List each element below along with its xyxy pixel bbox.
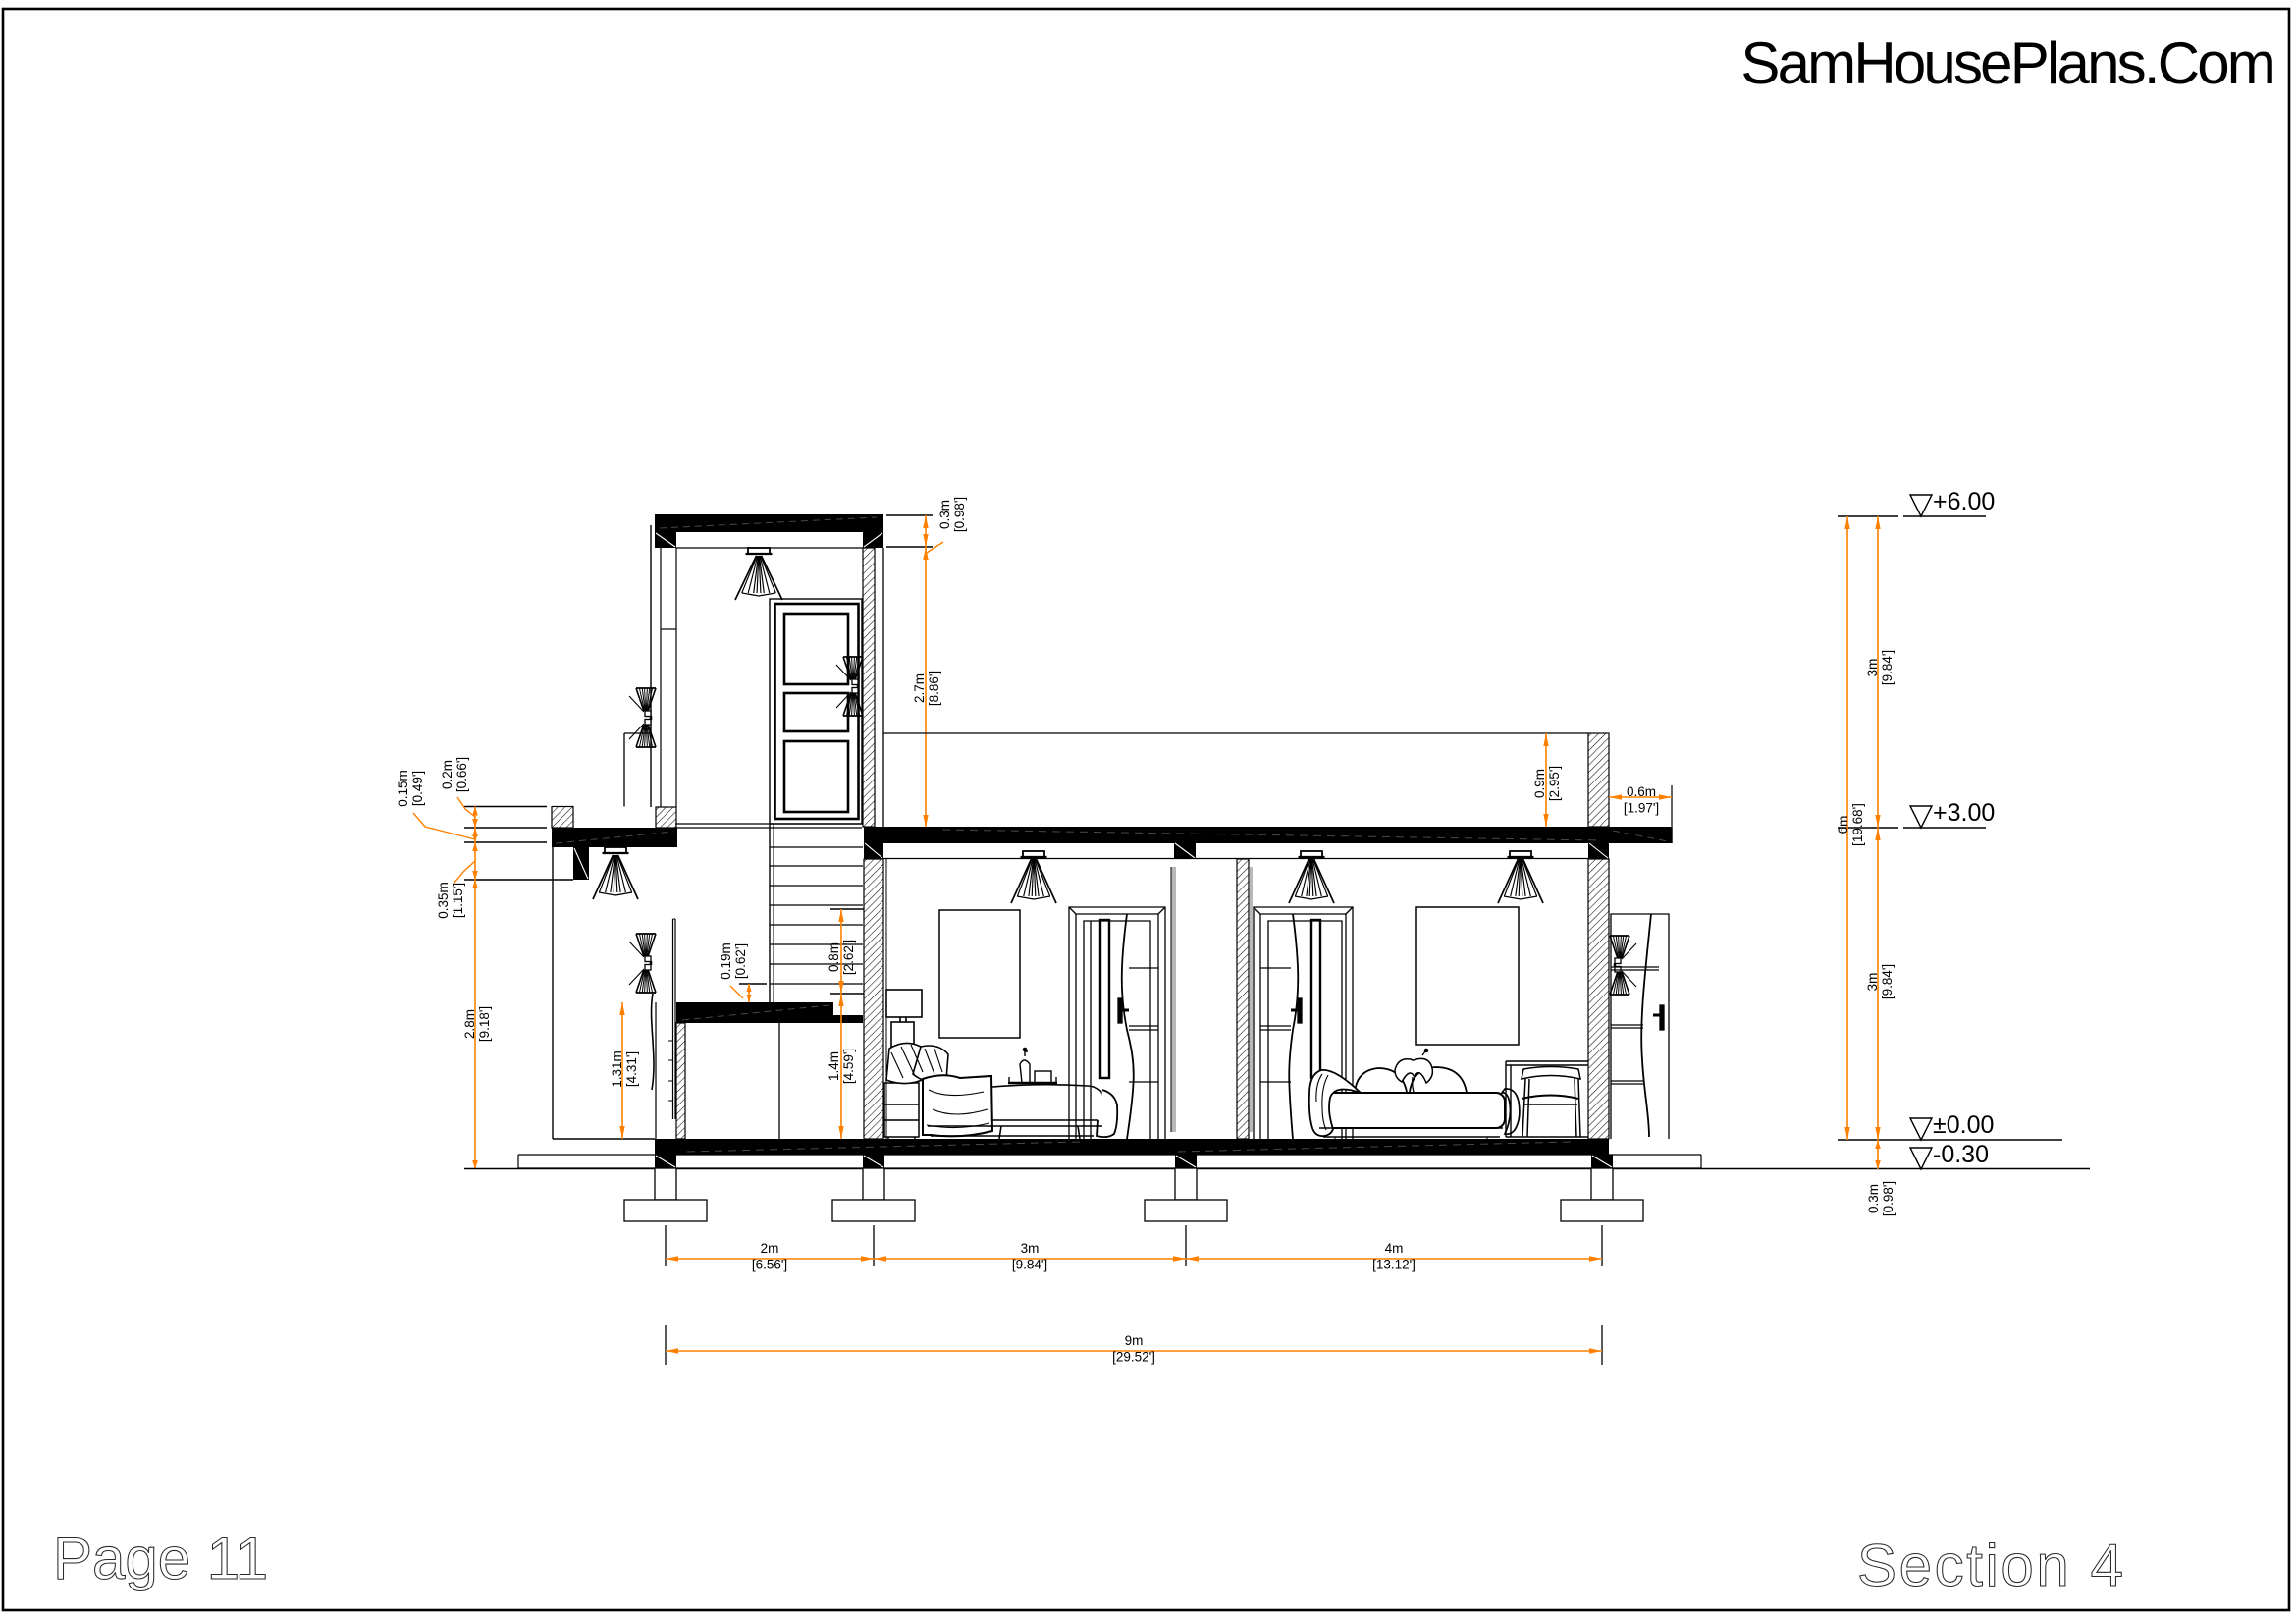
svg-text:Section 4: Section 4 bbox=[1857, 1533, 2126, 1598]
svg-text:[9.84']: [9.84'] bbox=[1012, 1258, 1047, 1272]
svg-text:[8.86']: [8.86'] bbox=[927, 671, 941, 706]
svg-text:0.3m: 0.3m bbox=[1866, 1184, 1881, 1213]
svg-text:+3.00: +3.00 bbox=[1933, 799, 1995, 827]
svg-text:1.4m: 1.4m bbox=[827, 1051, 841, 1081]
svg-text:[0.98']: [0.98'] bbox=[952, 497, 967, 532]
svg-text:0.3m: 0.3m bbox=[937, 500, 952, 529]
svg-text:1.31m: 1.31m bbox=[610, 1050, 624, 1088]
svg-text:0.8m: 0.8m bbox=[827, 942, 841, 972]
svg-text:-0.30: -0.30 bbox=[1933, 1141, 1989, 1168]
svg-text:9m: 9m bbox=[1125, 1333, 1144, 1348]
svg-text:SamHousePlans.Com: SamHousePlans.Com bbox=[1740, 30, 2273, 96]
svg-text:2.7m: 2.7m bbox=[912, 673, 927, 703]
svg-text:2m: 2m bbox=[761, 1241, 779, 1256]
svg-text:4m: 4m bbox=[1385, 1241, 1404, 1256]
svg-text:[9.18']: [9.18'] bbox=[477, 1006, 492, 1042]
svg-text:[2.95']: [2.95'] bbox=[1547, 766, 1562, 801]
svg-text:0.9m: 0.9m bbox=[1532, 769, 1547, 798]
svg-text:[1.15']: [1.15'] bbox=[451, 883, 465, 918]
svg-text:0.15m: 0.15m bbox=[396, 770, 410, 807]
svg-text:[0.49']: [0.49'] bbox=[410, 771, 425, 806]
svg-text:[0.62']: [0.62'] bbox=[733, 943, 748, 979]
svg-text:[6.56']: [6.56'] bbox=[752, 1258, 787, 1272]
svg-text:3m: 3m bbox=[1865, 659, 1880, 677]
svg-text:[9.84']: [9.84'] bbox=[1880, 650, 1895, 685]
svg-text:±0.00: ±0.00 bbox=[1933, 1111, 1994, 1139]
svg-text:[2.62']: [2.62'] bbox=[841, 940, 856, 975]
svg-text:0.6m: 0.6m bbox=[1627, 784, 1656, 799]
svg-text:[9.84']: [9.84'] bbox=[1880, 964, 1895, 999]
svg-text:[4.59']: [4.59'] bbox=[841, 1049, 856, 1084]
svg-text:[4.31']: [4.31'] bbox=[624, 1051, 639, 1087]
svg-text:[29.52']: [29.52'] bbox=[1112, 1350, 1155, 1365]
svg-text:+6.00: +6.00 bbox=[1933, 488, 1995, 515]
svg-text:0.2m: 0.2m bbox=[440, 760, 454, 789]
svg-text:[19.68']: [19.68'] bbox=[1850, 803, 1865, 846]
svg-text:[1.97']: [1.97'] bbox=[1624, 801, 1659, 816]
svg-text:2.8m: 2.8m bbox=[462, 1009, 477, 1039]
svg-text:3m: 3m bbox=[1865, 973, 1880, 992]
svg-text:3m: 3m bbox=[1021, 1241, 1040, 1256]
svg-text:0.35m: 0.35m bbox=[436, 882, 451, 919]
svg-text:[0.66']: [0.66'] bbox=[454, 757, 469, 792]
svg-text:Page 11: Page 11 bbox=[53, 1526, 268, 1591]
svg-text:6m: 6m bbox=[1836, 816, 1850, 834]
svg-text:[0.98']: [0.98'] bbox=[1881, 1181, 1896, 1216]
svg-text:[13.12']: [13.12'] bbox=[1372, 1258, 1415, 1272]
svg-text:0.19m: 0.19m bbox=[719, 942, 733, 980]
